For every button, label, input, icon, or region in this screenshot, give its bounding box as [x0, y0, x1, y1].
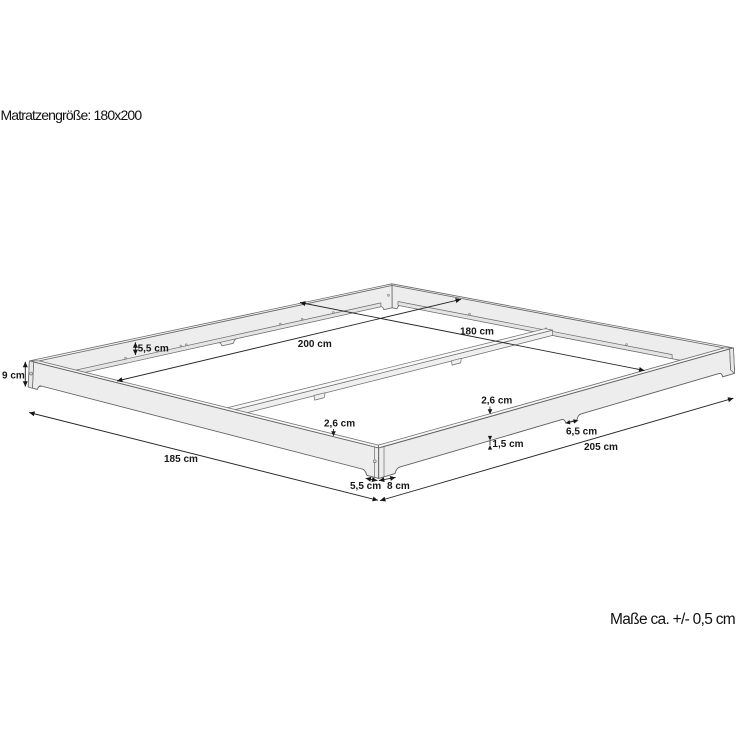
svg-text:1,5 cm: 1,5 cm [492, 439, 523, 450]
svg-text:8 cm: 8 cm [387, 481, 410, 492]
svg-text:2,6 cm: 2,6 cm [481, 395, 512, 406]
svg-text:5,5 cm: 5,5 cm [350, 481, 381, 492]
svg-text:180 cm: 180 cm [460, 327, 494, 338]
svg-text:5,5 cm: 5,5 cm [138, 344, 169, 355]
svg-text:Maße ca. +/- 0,5 cm: Maße ca. +/- 0,5 cm [610, 611, 735, 628]
svg-text:200 cm: 200 cm [298, 339, 332, 350]
svg-text:205 cm: 205 cm [584, 442, 618, 453]
svg-text:9 cm: 9 cm [2, 370, 25, 381]
svg-text:6,5 cm: 6,5 cm [566, 427, 597, 438]
svg-text:185 cm: 185 cm [164, 454, 198, 465]
svg-text:2,6 cm: 2,6 cm [324, 419, 355, 430]
svg-text:Matratzengröße: 180x200: Matratzengröße: 180x200 [1, 107, 143, 123]
